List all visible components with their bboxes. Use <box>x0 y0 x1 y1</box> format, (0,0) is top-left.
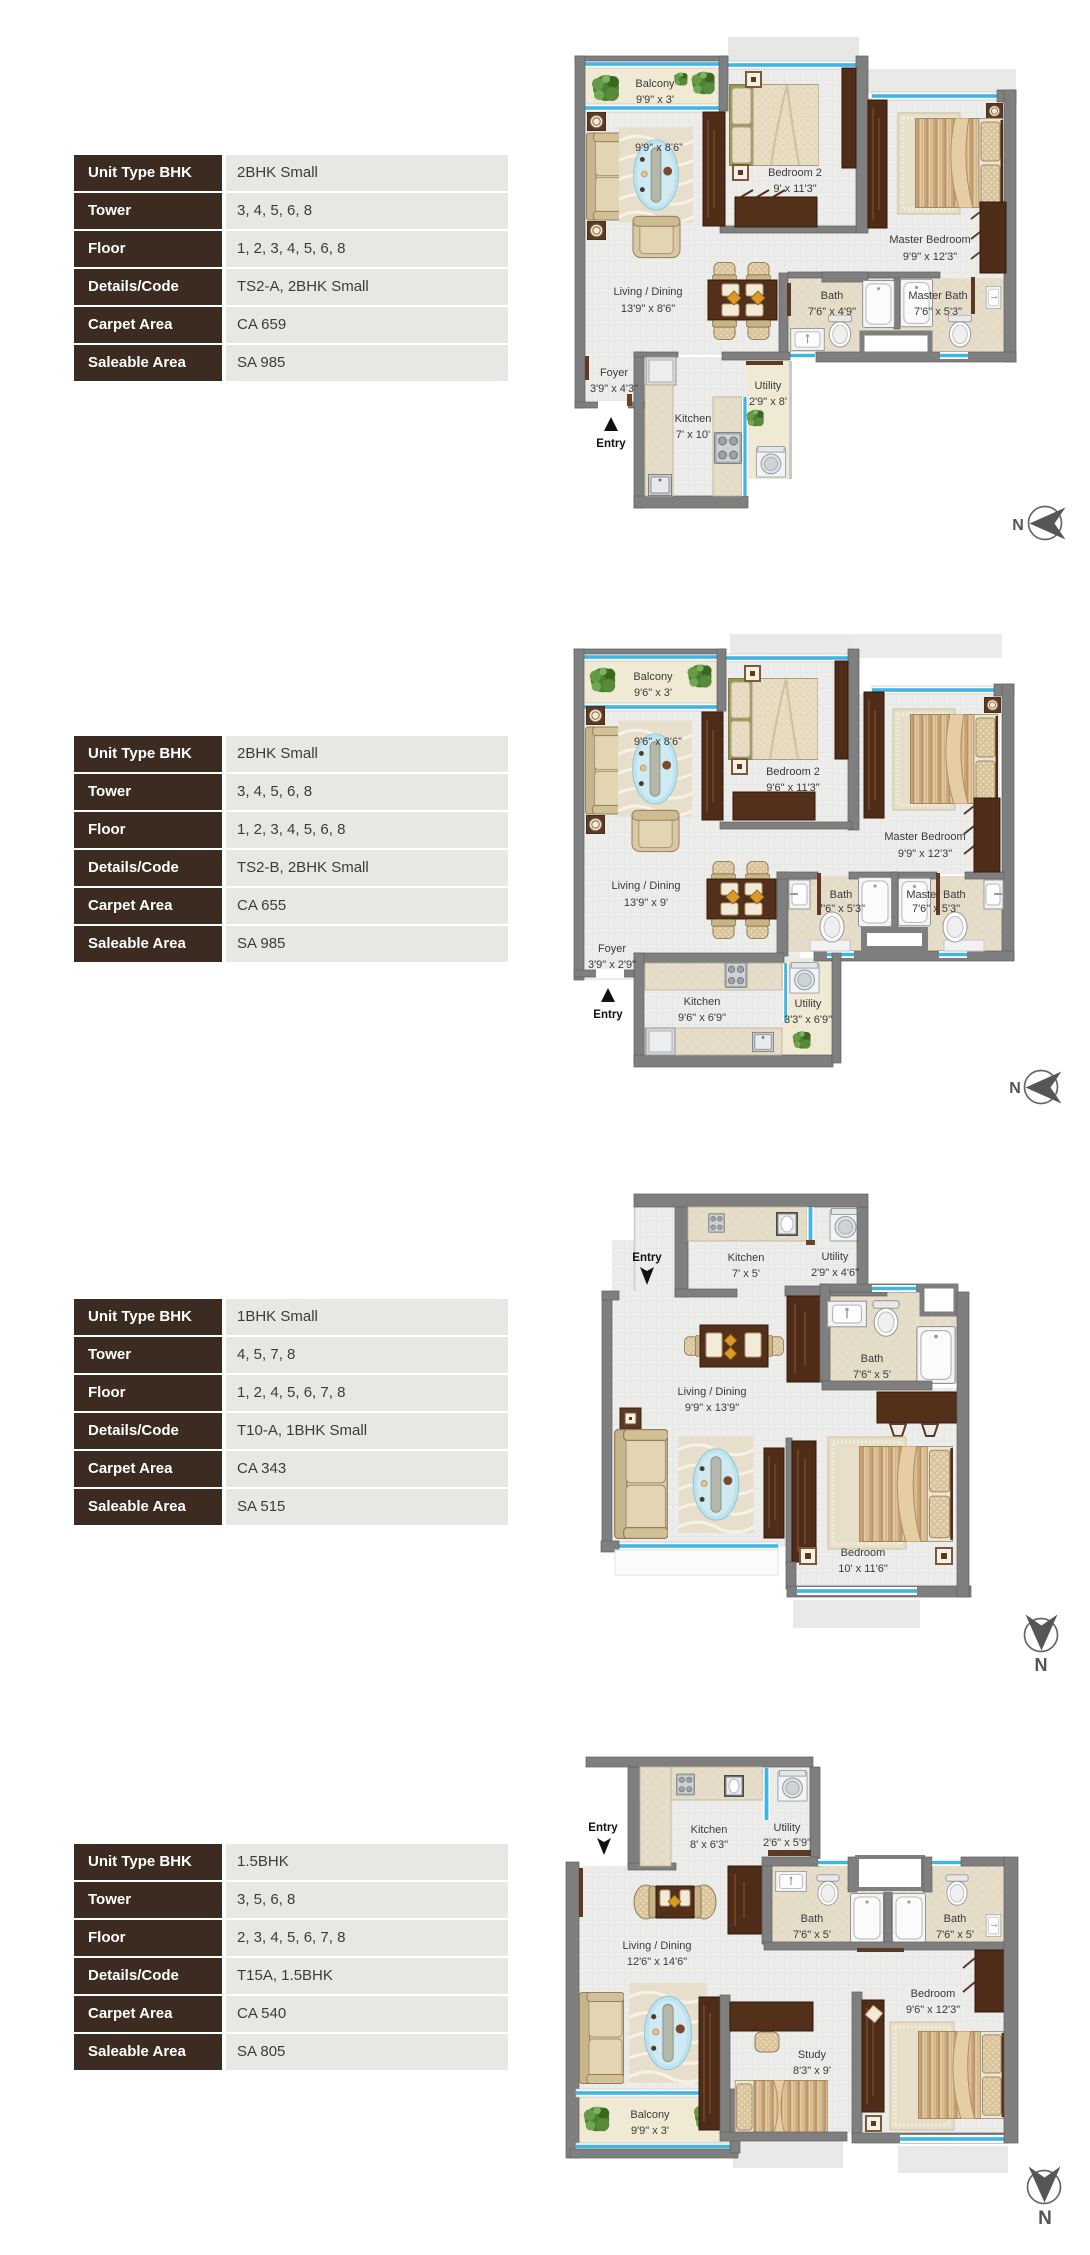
svg-text:8' x 6'3": 8' x 6'3" <box>690 1839 728 1851</box>
svg-text:Foyer: Foyer <box>600 367 628 379</box>
svg-text:Entry: Entry <box>593 1009 623 1021</box>
svg-text:Foyer: Foyer <box>598 943 626 955</box>
svg-text:Master Bedroom: Master Bedroom <box>889 234 970 246</box>
svg-text:9'6" x 3': 9'6" x 3' <box>634 687 672 699</box>
svg-text:8'3" x 9': 8'3" x 9' <box>793 2065 831 2077</box>
svg-text:Utility: Utility <box>795 998 822 1010</box>
svg-text:Entry: Entry <box>588 1822 618 1834</box>
svg-text:Utility: Utility <box>755 380 782 392</box>
svg-text:12'6" x 14'6": 12'6" x 14'6" <box>627 1956 687 1968</box>
svg-text:3'9" x 2'9": 3'9" x 2'9" <box>588 959 636 971</box>
svg-text:Living / Dining: Living / Dining <box>611 880 680 892</box>
svg-text:9'9" x 12'3": 9'9" x 12'3" <box>903 251 957 263</box>
svg-text:2'6" x 5'9": 2'6" x 5'9" <box>763 1837 811 1849</box>
svg-text:Study: Study <box>798 2049 827 2061</box>
svg-text:Bath: Bath <box>830 889 853 901</box>
svg-text:7'6" x 5'3": 7'6" x 5'3" <box>817 903 865 915</box>
svg-text:Bedroom 2: Bedroom 2 <box>768 167 822 179</box>
svg-text:2'9" x 4'6": 2'9" x 4'6" <box>811 1267 859 1279</box>
svg-text:10' x 11'6": 10' x 11'6" <box>838 1563 888 1575</box>
svg-text:N: N <box>1035 1655 1048 1675</box>
svg-text:9'9" x 13'9": 9'9" x 13'9" <box>685 1402 739 1414</box>
svg-text:Balcony: Balcony <box>635 78 675 90</box>
svg-text:2'9" x 8': 2'9" x 8' <box>749 396 787 408</box>
svg-text:7'6" x 4'9": 7'6" x 4'9" <box>808 306 856 318</box>
svg-text:7'6" x 5': 7'6" x 5' <box>936 1929 974 1941</box>
svg-text:Bath: Bath <box>944 1913 967 1925</box>
svg-text:Bedroom: Bedroom <box>841 1547 886 1559</box>
svg-text:Bath: Bath <box>821 290 844 302</box>
svg-text:Living / Dining: Living / Dining <box>613 286 682 298</box>
svg-text:7'6" x 5'3": 7'6" x 5'3" <box>914 306 962 318</box>
svg-text:9'6" x 6'9": 9'6" x 6'9" <box>678 1012 726 1024</box>
svg-text:Living / Dining: Living / Dining <box>677 1386 746 1398</box>
svg-text:7' x 10': 7' x 10' <box>676 429 710 441</box>
svg-text:9'6" x 12'3": 9'6" x 12'3" <box>906 2004 960 2016</box>
svg-text:9'6" x 8'6": 9'6" x 8'6" <box>634 736 682 748</box>
svg-text:Utility: Utility <box>822 1251 849 1263</box>
svg-text:Living / Dining: Living / Dining <box>622 1940 691 1952</box>
svg-text:9'9" x 3': 9'9" x 3' <box>636 94 674 106</box>
svg-text:7'6" x 5'3": 7'6" x 5'3" <box>912 903 960 915</box>
svg-text:13'9" x 9': 13'9" x 9' <box>624 897 668 909</box>
svg-text:Kitchen: Kitchen <box>728 1252 765 1264</box>
svg-text:Utility: Utility <box>774 1822 801 1834</box>
svg-text:Bath: Bath <box>861 1353 884 1365</box>
svg-text:3'9" x 4'3": 3'9" x 4'3" <box>590 383 638 395</box>
svg-text:9'9" x 8'6": 9'9" x 8'6" <box>635 142 683 154</box>
svg-text:13'9" x 8'6": 13'9" x 8'6" <box>621 303 675 315</box>
svg-text:Master Bath: Master Bath <box>908 290 967 302</box>
svg-text:7' x 5': 7' x 5' <box>732 1268 760 1280</box>
svg-text:Entry: Entry <box>596 438 626 450</box>
svg-text:9'9" x 12'3": 9'9" x 12'3" <box>898 848 952 860</box>
svg-text:Master Bath: Master Bath <box>906 889 965 901</box>
svg-text:Balcony: Balcony <box>630 2109 670 2121</box>
svg-text:N: N <box>1009 1080 1021 1097</box>
svg-text:N: N <box>1012 517 1024 534</box>
svg-text:Bath: Bath <box>801 1913 824 1925</box>
svg-text:Kitchen: Kitchen <box>691 1824 728 1836</box>
svg-text:Master Bedroom: Master Bedroom <box>884 831 965 843</box>
svg-text:9'6" x 11'3": 9'6" x 11'3" <box>766 782 819 794</box>
svg-text:Bedroom: Bedroom <box>911 1988 956 2000</box>
svg-text:9' x 11'3": 9' x 11'3" <box>773 183 816 195</box>
svg-text:Kitchen: Kitchen <box>675 413 712 425</box>
svg-text:Bedroom 2: Bedroom 2 <box>766 766 820 778</box>
svg-text:N: N <box>1038 2208 1052 2229</box>
svg-text:Balcony: Balcony <box>633 671 673 683</box>
svg-text:Kitchen: Kitchen <box>684 996 721 1008</box>
svg-text:7'6" x 5': 7'6" x 5' <box>853 1369 891 1381</box>
svg-text:3'3" x 6'9": 3'3" x 6'9" <box>784 1014 832 1026</box>
svg-text:9'9" x 3': 9'9" x 3' <box>631 2125 669 2137</box>
svg-text:Entry: Entry <box>632 1252 662 1264</box>
svg-text:7'6" x 5': 7'6" x 5' <box>793 1929 831 1941</box>
